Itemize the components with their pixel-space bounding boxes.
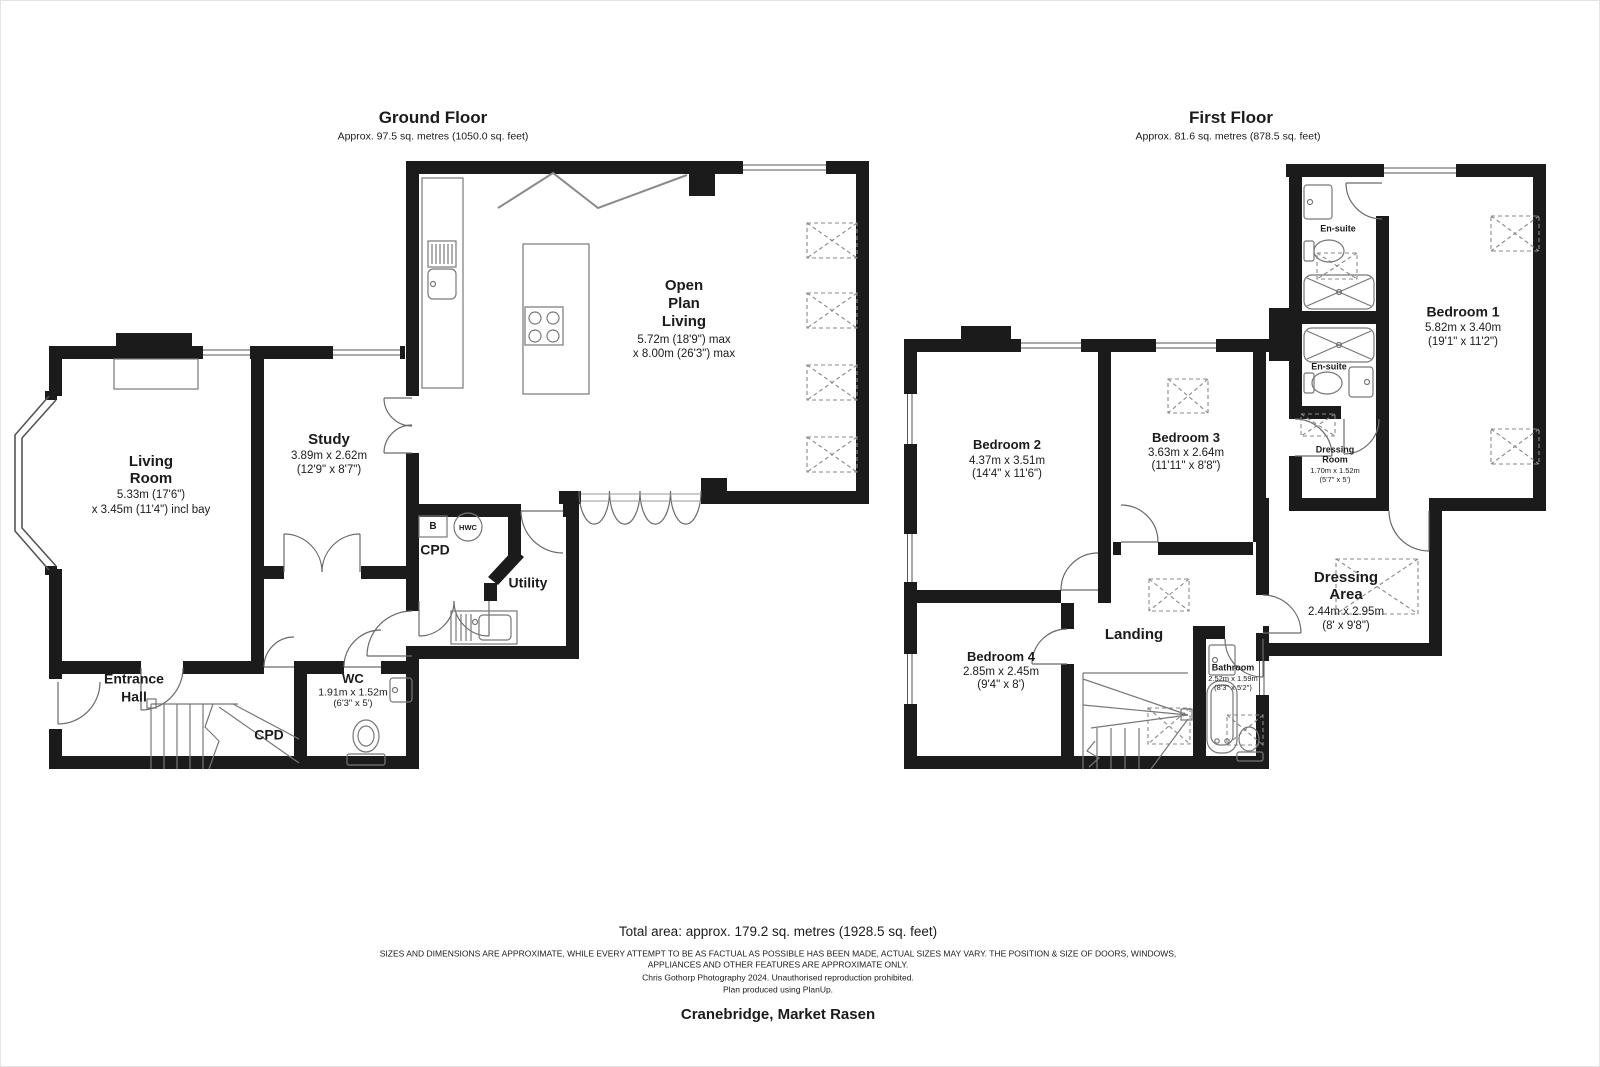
bedroom2-name: Bedroom 2 <box>973 438 1041 452</box>
open-plan-name-2: Plan <box>668 296 700 312</box>
wc-name: WC <box>342 672 364 686</box>
dressing-room-dim-2: (5'7" x 5') <box>1320 476 1351 484</box>
ground-floor-subtitle: Approx. 97.5 sq. metres (1050.0 sq. feet… <box>338 131 529 142</box>
bay-window <box>15 396 56 570</box>
ensuite-top-toilet <box>1304 240 1344 262</box>
disclaimer-line-1: SIZES AND DIMENSIONS ARE APPROXIMATE, WH… <box>380 950 1177 959</box>
living-room-name-2: Room <box>130 471 173 487</box>
living-room-dim-2: x 3.45m (11'4") incl bay <box>92 504 211 516</box>
entrance-hall-name-1: Entrance <box>104 672 164 687</box>
cpd-understairs-label: CPD <box>254 728 284 743</box>
dressing-area-name-1: Dressing <box>1314 570 1378 586</box>
bedroom1-dim-1: 5.82m x 3.40m <box>1425 322 1501 334</box>
first-floor-title: First Floor <box>1189 109 1273 127</box>
ground-floor-title: Ground Floor <box>379 109 488 127</box>
dressing-area-name-2: Area <box>1329 587 1362 603</box>
bedroom2-dim-2: (14'4" x 11'6") <box>972 468 1042 480</box>
vaulted-ceiling-line <box>498 173 687 208</box>
utility-label: Utility <box>509 576 548 591</box>
open-plan-dim-2: x 8.00m (26'3") max <box>633 348 735 360</box>
kitchen-island-hob <box>523 244 589 394</box>
bedroom4-dim-2: (9'4" x 8') <box>977 679 1024 691</box>
floorplan-page: Ground Floor Approx. 97.5 sq. metres (10… <box>0 0 1600 1067</box>
software-text: Plan produced using PlanUp. <box>723 986 833 995</box>
study-dim-1: 3.89m x 2.62m <box>291 450 367 462</box>
ensuite-mid-label: En-suite <box>1311 362 1347 371</box>
cpd-label: CPD <box>420 543 450 558</box>
first-floor-subtitle: Approx. 81.6 sq. metres (878.5 sq. feet) <box>1135 131 1320 142</box>
ensuite-mid-toilet <box>1304 372 1342 394</box>
hwc-label: HWC <box>459 524 477 532</box>
bifold-doors <box>579 491 701 524</box>
open-plan-name-1: Open <box>665 278 703 294</box>
bedroom1-dim-2: (19'1" x 11'2") <box>1428 336 1498 348</box>
study-name: Study <box>308 432 350 448</box>
wc-dim-2: (6'3" x 5') <box>333 699 372 709</box>
living-room-dim-1: 5.33m (17'6") <box>117 489 185 501</box>
bedroom2-dim-1: 4.37m x 3.51m <box>969 455 1045 467</box>
entrance-hall-name-2: Hall <box>121 690 147 705</box>
open-plan-dim-1: 5.72m (18'9") max <box>637 334 730 346</box>
dressing-room-dim-1: 1.70m x 1.52m <box>1310 467 1360 475</box>
ensuite-top-sink <box>1304 185 1332 219</box>
total-area-text: Total area: approx. 179.2 sq. metres (19… <box>619 925 937 939</box>
disclaimer-line-2: APPLIANCES AND OTHER FEATURES ARE APPROX… <box>648 961 909 970</box>
ground-floor-fixtures <box>114 173 857 769</box>
ensuite-mid-sink <box>1349 367 1373 397</box>
fireplace-recess <box>114 359 198 389</box>
bathroom-name: Bathroom <box>1212 663 1255 672</box>
open-plan-name-3: Living <box>662 314 706 330</box>
floor-plan-drawing <box>1 1 1600 1067</box>
bedroom3-name: Bedroom 3 <box>1152 431 1220 445</box>
ensuite-mid-shower <box>1304 328 1374 362</box>
landing-stairs <box>1083 673 1192 769</box>
bathroom-dim-2: (8'3" x 5'2") <box>1214 684 1252 692</box>
dressing-area-dim-1: 2.44m x 2.95m <box>1308 606 1384 618</box>
bedroom3-dim-1: 3.63m x 2.64m <box>1148 447 1224 459</box>
study-dim-2: (12'9" x 8'7") <box>297 464 361 476</box>
ensuite-top-shower <box>1304 275 1374 309</box>
wc-dim-1: 1.91m x 1.52m <box>318 687 387 698</box>
bedroom3-dim-2: (11'11" x 8'8") <box>1151 460 1220 472</box>
boiler-label: B <box>429 522 436 533</box>
utility-sink <box>451 611 517 644</box>
credit-text: Chris Gothorp Photography 2024. Unauthor… <box>642 974 914 983</box>
rooflights-open-plan <box>807 223 857 472</box>
bedroom4-name: Bedroom 4 <box>967 650 1035 664</box>
landing-label: Landing <box>1105 627 1163 643</box>
bathroom-dim-1: 2.52m x 1.59m <box>1208 675 1258 683</box>
first-floor-doors <box>1032 183 1429 677</box>
living-room-name-1: Living <box>129 454 173 470</box>
dressing-room-name-2: Room <box>1322 455 1348 464</box>
address-title: Cranebridge, Market Rasen <box>681 1007 875 1023</box>
bedroom4-dim-1: 2.85m x 2.45m <box>963 666 1039 678</box>
ensuite-top-label: En-suite <box>1320 224 1356 233</box>
bedroom1-name: Bedroom 1 <box>1426 305 1499 320</box>
dressing-area-dim-2: (8' x 9'8") <box>1322 620 1369 632</box>
